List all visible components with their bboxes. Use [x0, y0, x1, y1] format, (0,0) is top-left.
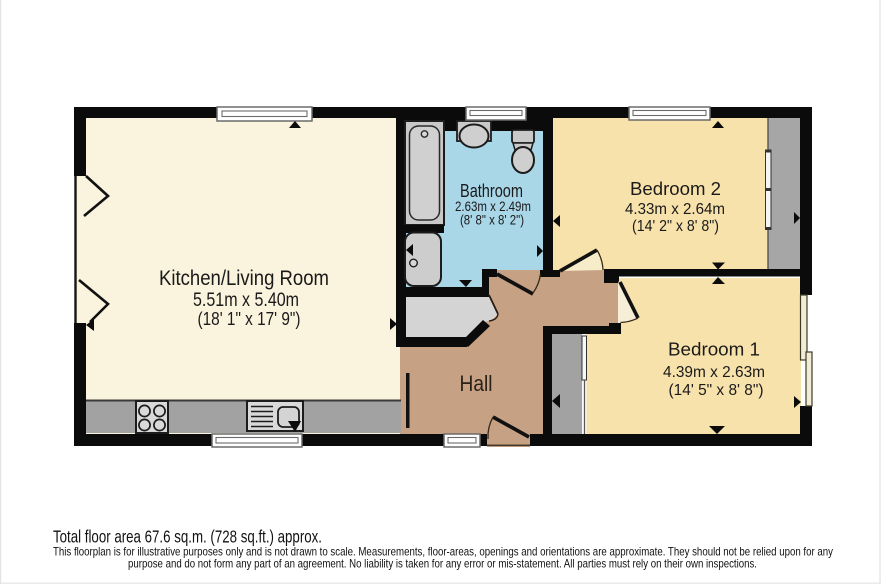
svg-text:4.39m x 2.63m: 4.39m x 2.63m — [663, 364, 765, 381]
svg-text:Total floor area 67.6 sq.m. (7: Total floor area 67.6 sq.m. (728 sq.ft.)… — [53, 527, 322, 547]
svg-text:Bedroom 2: Bedroom 2 — [630, 179, 721, 199]
svg-text:(14' 2" x 8' 8"): (14' 2" x 8' 8") — [632, 218, 719, 235]
svg-text:(8' 8" x 8' 2"): (8' 8" x 8' 2") — [460, 213, 524, 228]
svg-text:Hall: Hall — [460, 371, 493, 396]
svg-text:4.33m x 2.64m: 4.33m x 2.64m — [625, 201, 725, 218]
svg-text:(14' 5" x 8' 8"): (14' 5" x 8' 8") — [669, 382, 764, 399]
svg-text:purpose and do not form any pa: purpose and do not form any part of an a… — [128, 557, 757, 571]
svg-text:Kitchen/Living Room: Kitchen/Living Room — [159, 267, 329, 290]
svg-text:Bedroom 1: Bedroom 1 — [668, 340, 760, 360]
svg-text:5.51m x 5.40m: 5.51m x 5.40m — [193, 289, 299, 311]
svg-text:(18' 1" x 17' 9"): (18' 1" x 17' 9") — [198, 309, 301, 329]
svg-text:Bathroom: Bathroom — [460, 181, 523, 201]
